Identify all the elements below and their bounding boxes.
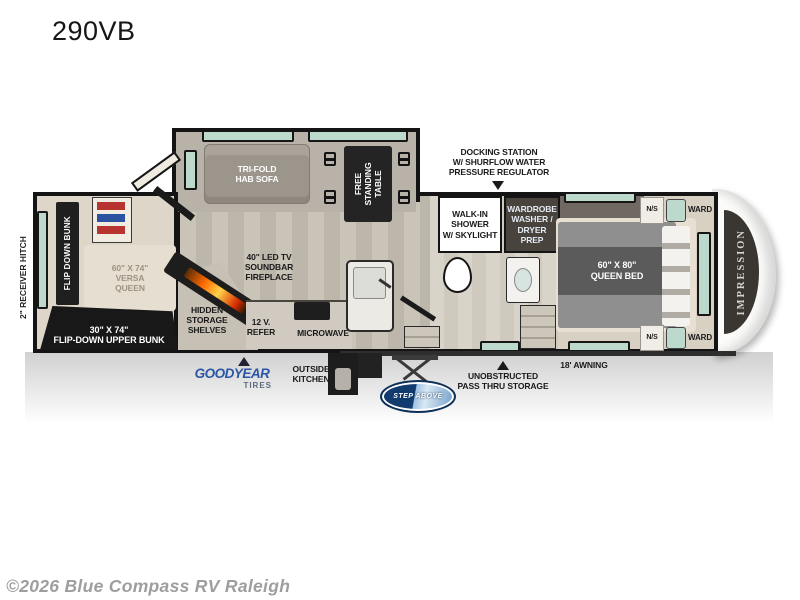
flip-down-bunk-label: FLIP DOWN BUNK [63,216,72,290]
pass-thru-label: UNOBSTRUCTED PASS THRU STORAGE [450,371,556,391]
living-sidewall-window-icon [184,150,197,190]
stepabove-logo: STEP ABOVE [380,380,456,413]
dining-chair-icon [398,152,410,166]
flip-down-bunk: FLIP DOWN BUNK [56,202,79,305]
goodyear-wingfoot-icon [238,357,250,366]
tv-label: 40" LED TV SOUNDBAR FIREPLACE [234,252,304,282]
wardrobe-washer-dryer: WARDROBE WASHER / DRYER PREP [504,196,560,253]
toilet-icon [443,257,472,293]
copyright-footer: ©2026 Blue Compass RV Raleigh [6,576,290,597]
nightstand-bottom: N/S [640,325,664,351]
floorplan-canvas: 290VB IMPRESSION TRI-FOLD HAB SOFA FREE … [0,0,800,600]
tri-fold-sofa: TRI-FOLD HAB SOFA [204,144,310,204]
nightstand-top: N/S [640,197,664,224]
stepabove-wordmark: STEP ABOVE [393,393,443,400]
bedroom-side-window-icon [697,232,711,316]
sofa-label: TRI-FOLD HAB SOFA [235,164,278,184]
living-window-left-icon [202,130,294,142]
vanity-sink-icon [514,268,532,292]
goodyear-tires-label: TIRES [186,381,278,390]
ward-bottom-label: WARD [686,333,714,342]
storage-bin-blue [97,214,125,222]
cooktop [294,302,330,320]
queen-bed-band: 60" X 80" QUEEN BED [558,247,676,295]
kitchen-island [346,260,394,332]
dining-chair-icon [324,152,336,166]
bed-pillows-icon [662,226,690,326]
ward-top-label: WARD [686,205,714,214]
page-title: 290VB [52,16,136,47]
hidden-storage-label: HIDDEN STORAGE SHELVES [178,305,236,335]
upper-bunk-label: 30" X 74" FLIP-DOWN UPPER BUNK [54,325,165,350]
goodyear-wordmark: GOODYEAR [186,366,278,381]
nightstand-cushion-top [666,199,686,222]
ns-top-label: N/S [646,206,657,214]
living-window-right-icon [308,130,408,142]
ns-bottom-label: N/S [646,334,657,342]
wardrobe-label: WARDROBE WASHER / DRYER PREP [506,204,558,244]
arrow-down-icon [492,181,504,190]
shower-label: WALK-IN SHOWER W/ SKYLIGHT [443,209,498,239]
storage-bin-red2 [97,226,125,234]
upper-bunk: 30" X 74" FLIP-DOWN UPPER BUNK [40,306,178,350]
walk-in-shower: WALK-IN SHOWER W/ SKYLIGHT [438,196,502,253]
versa-queen-label: 60" X 74" VERSA QUEEN [112,263,148,293]
dining-chair-icon [324,190,336,204]
impression-logo: IMPRESSION [736,229,747,316]
storage-bin-red [97,202,125,210]
bedroom-steps [520,305,556,349]
free-standing-table: FREE STANDING TABLE [344,146,392,222]
queen-bed-label: 60" X 80" QUEEN BED [591,260,644,281]
refer-label: 12 V. REFER [240,317,282,337]
dining-chair-icon [398,190,410,204]
nightstand-cushion-bottom [666,327,686,349]
bath-vanity [506,257,540,303]
bunk-window-icon [37,211,48,309]
bedroom-top-window-icon [564,192,636,203]
interior-entry-steps [404,326,440,348]
table-label: FREE STANDING TABLE [353,160,383,208]
entry-step-block [358,353,382,378]
receiver-hitch-label: 2" RECEIVER HITCH [18,197,28,319]
goodyear-logo: GOODYEAR TIRES [186,357,278,390]
docking-station-label: DOCKING STATION W/ SHURFLOW WATER PRESSU… [446,147,552,177]
outside-kitchen-label: OUTSIDE KITCHEN [282,364,340,384]
arrow-up-icon [497,361,509,370]
versa-queen-bed: 60" X 74" VERSA QUEEN [84,245,176,311]
awning-label: 18' AWNING [552,360,616,370]
microwave-label: MICROWAVE [292,328,354,338]
bunk-cabinet [92,197,132,243]
